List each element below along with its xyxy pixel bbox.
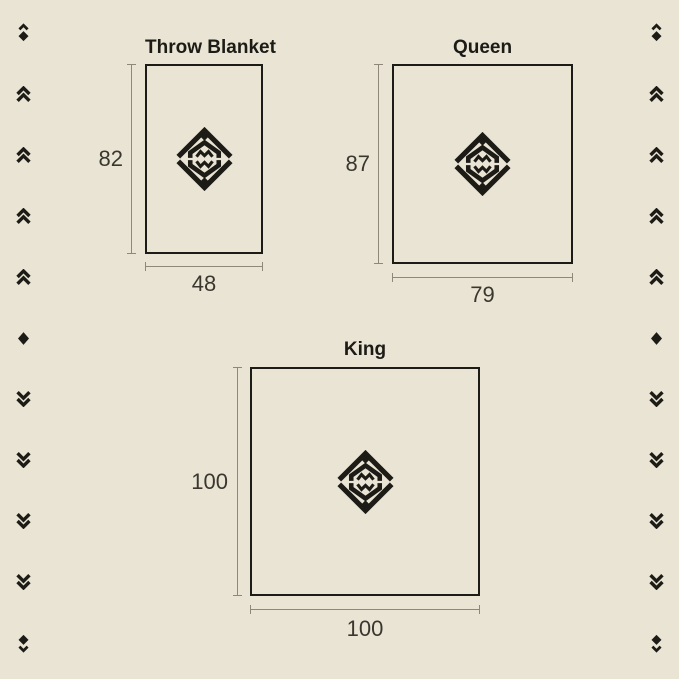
blanket-outline (392, 64, 573, 264)
chevrons-up-icon (648, 84, 665, 104)
blanket-outline (250, 367, 480, 596)
brand-emblem-icon (337, 450, 394, 514)
width-dimension-line (145, 262, 263, 271)
chevrons-down-icon (648, 572, 665, 592)
height-value: 82 (86, 146, 123, 172)
blanket-outline (145, 64, 263, 254)
chevrons-up-icon (648, 145, 665, 165)
chevrons-up-icon (15, 206, 32, 226)
size-title: Queen (392, 38, 573, 58)
chevrons-down-icon (15, 389, 32, 409)
chevrons-up-icon (15, 84, 32, 104)
chevrons-up-icon (15, 267, 32, 287)
chevrons-down-icon (15, 572, 32, 592)
brand-emblem-icon (176, 127, 233, 191)
size-title: King (250, 340, 480, 360)
chevrons-up-icon (15, 145, 32, 165)
chevrons-down-icon (648, 450, 665, 470)
chevrons-up-icon (648, 267, 665, 287)
cap-diamond-icon (650, 23, 663, 43)
chevrons-up-icon (648, 206, 665, 226)
chevrons-down-icon (15, 511, 32, 531)
height-dimension-line (233, 367, 242, 596)
diamond-icon (18, 328, 29, 348)
width-value: 100 (250, 616, 480, 642)
width-value: 48 (145, 271, 263, 297)
width-dimension-line (250, 605, 480, 614)
diamond-tail-icon (17, 633, 30, 653)
chevrons-down-icon (648, 389, 665, 409)
width-dimension-line (392, 273, 573, 282)
brand-emblem-icon (454, 132, 511, 196)
chevrons-down-icon (648, 511, 665, 531)
height-value: 87 (333, 151, 370, 177)
chevrons-down-icon (15, 450, 32, 470)
height-dimension-line (127, 64, 136, 254)
diamond-tail-icon (650, 633, 663, 653)
height-dimension-line (374, 64, 383, 264)
right-ornament-column (639, 23, 673, 653)
diamond-icon (651, 328, 662, 348)
left-ornament-column (6, 23, 40, 653)
cap-diamond-icon (17, 23, 30, 43)
blanket-size-chart: Throw Blanket 82 48 Queen 87 79 King 100… (0, 0, 679, 679)
size-title: Throw Blanket (145, 38, 263, 58)
height-value: 100 (178, 469, 228, 495)
width-value: 79 (392, 282, 573, 308)
